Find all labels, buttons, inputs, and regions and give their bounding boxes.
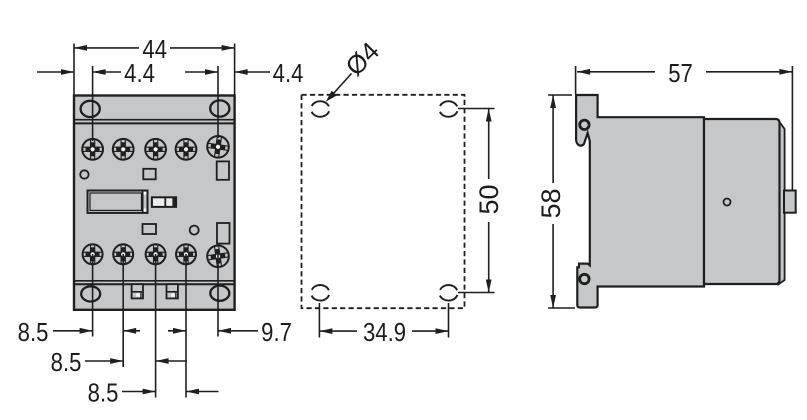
svg-text:4.4: 4.4: [124, 59, 155, 88]
svg-text:58: 58: [536, 188, 566, 218]
svg-text:8.5: 8.5: [88, 379, 119, 408]
svg-text:34.9: 34.9: [363, 318, 406, 347]
svg-text:Ø4: Ø4: [339, 36, 385, 82]
svg-text:9.7: 9.7: [261, 318, 292, 347]
svg-text:8.5: 8.5: [18, 318, 49, 347]
svg-text:50: 50: [474, 184, 504, 214]
svg-text:8.5: 8.5: [51, 348, 82, 377]
svg-text:4.4: 4.4: [273, 59, 304, 88]
svg-text:57: 57: [668, 59, 693, 88]
